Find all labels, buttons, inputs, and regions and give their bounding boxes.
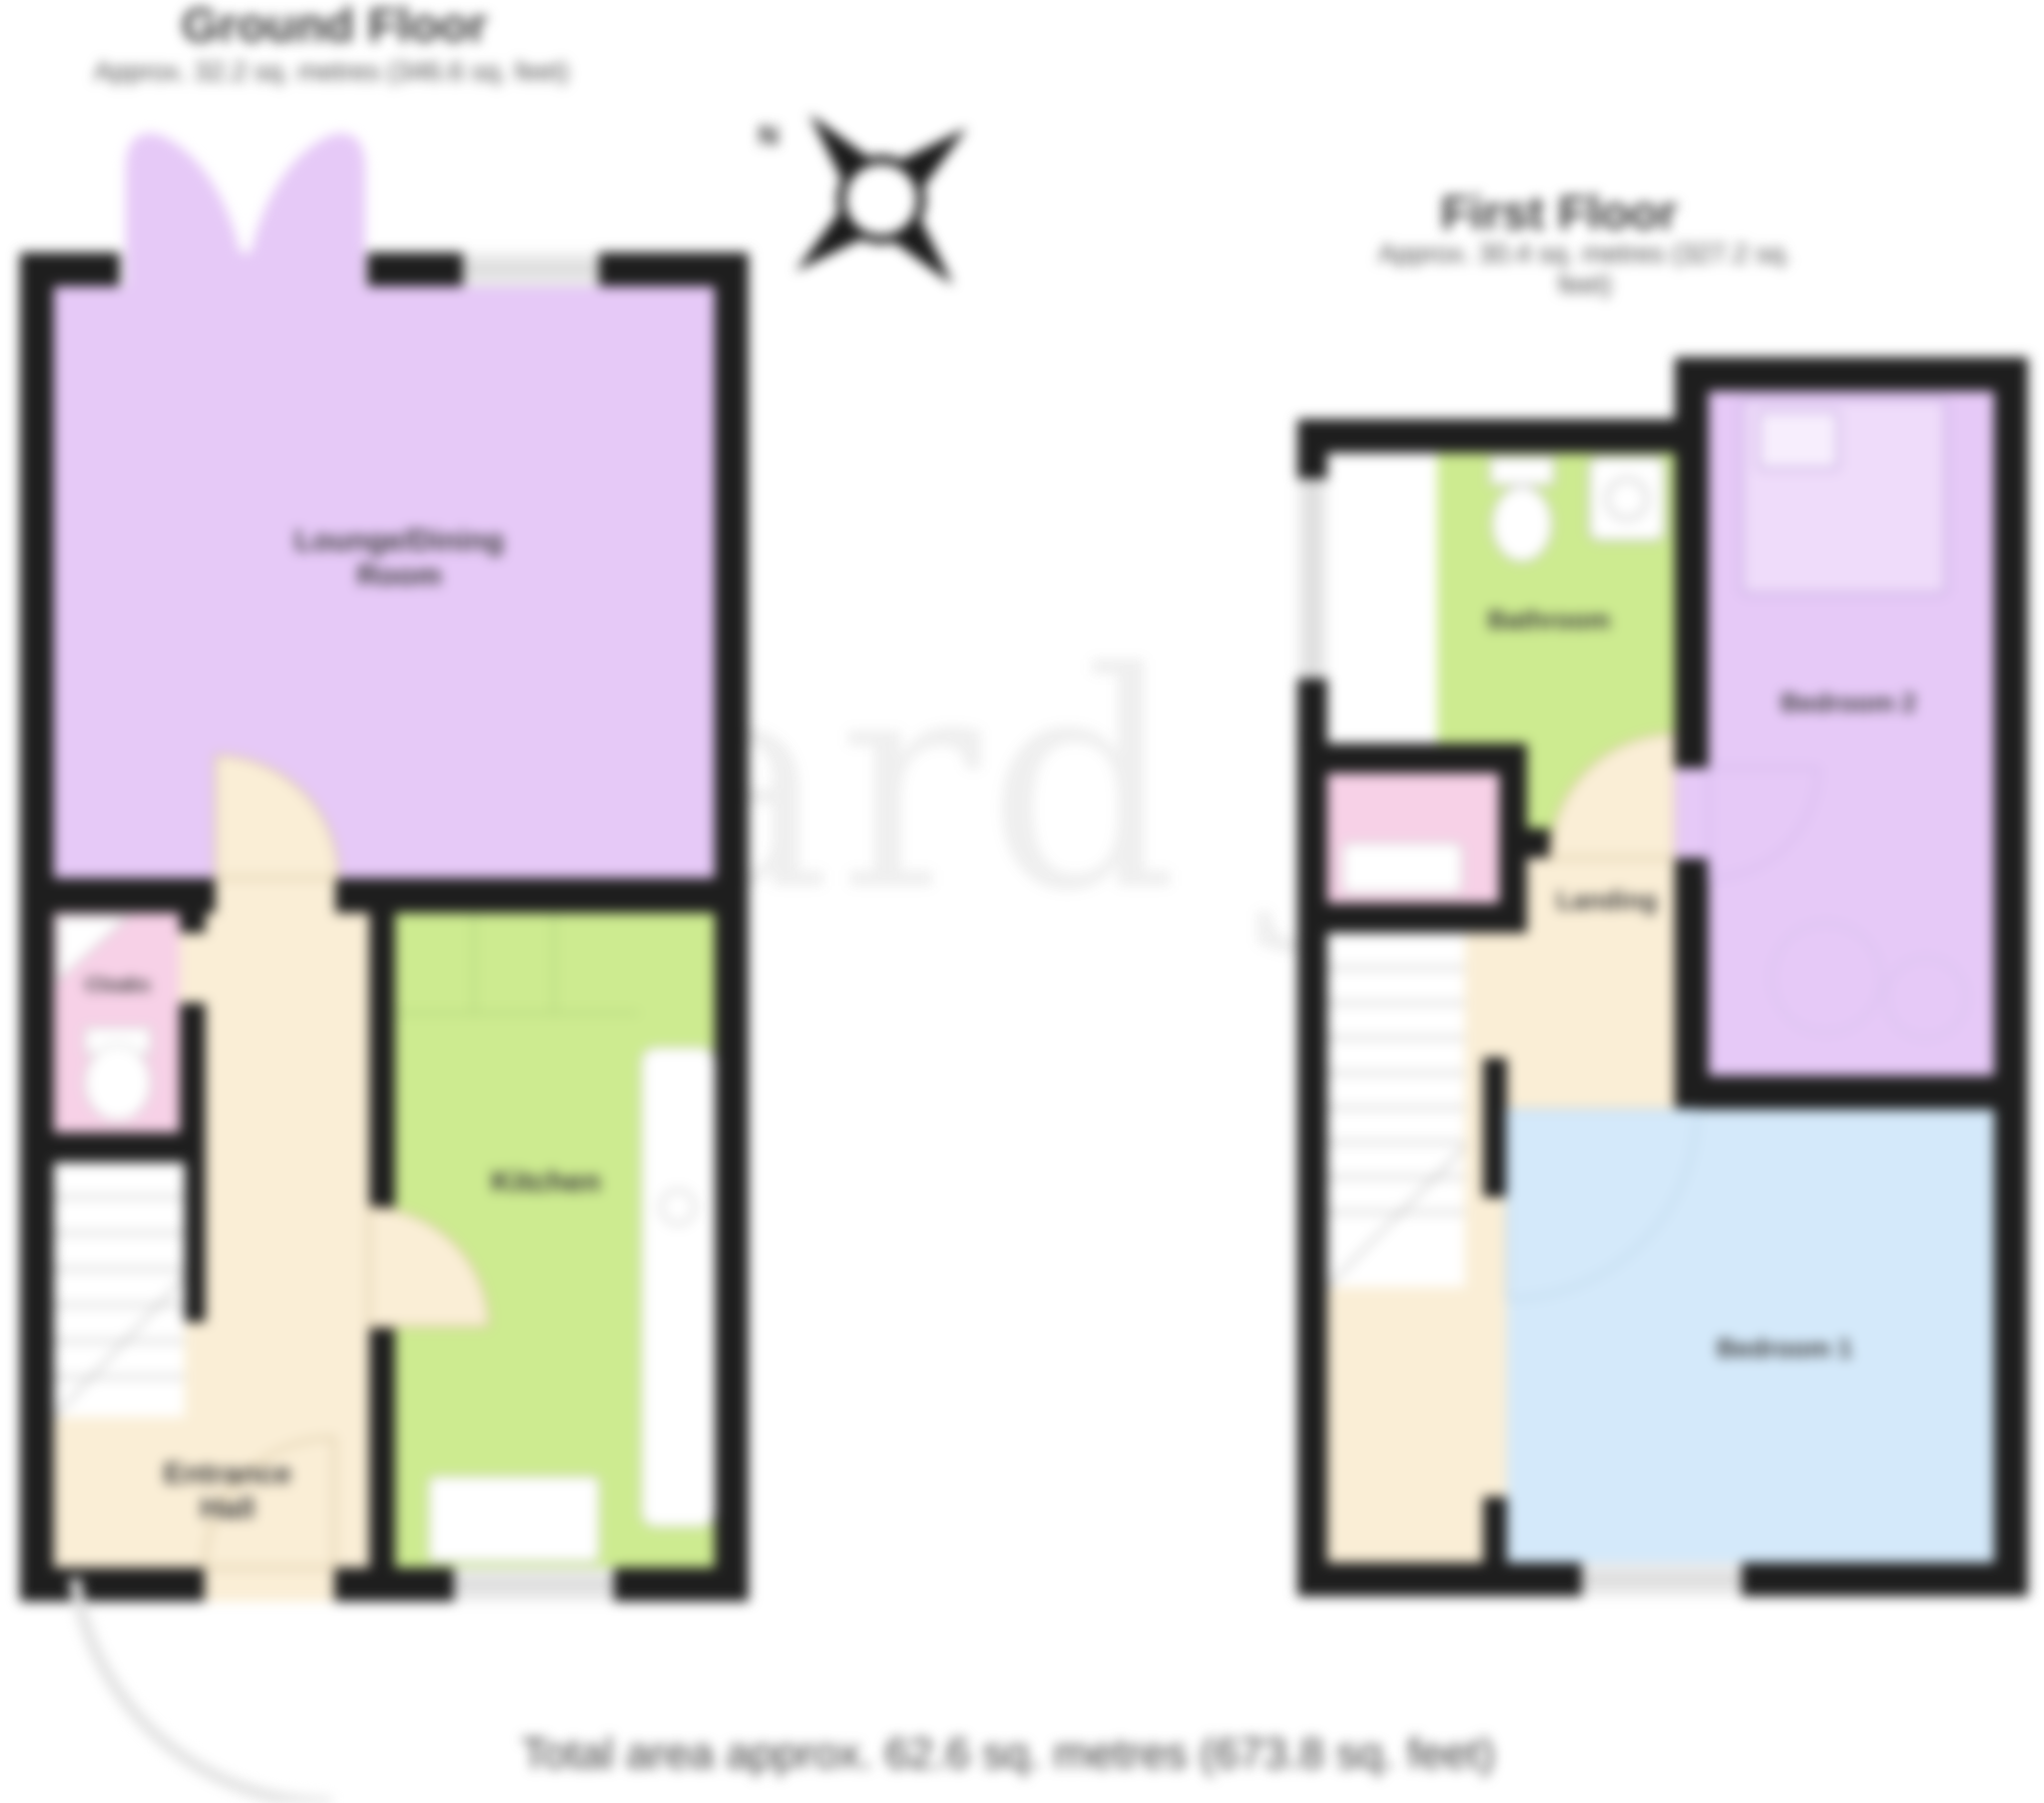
cupboard-tank-icon bbox=[1342, 843, 1462, 893]
toilet-icon bbox=[1492, 486, 1552, 562]
first-floor-subtitle: Approx. 30.4 sq. metres (327.2 sq. feet) bbox=[1355, 238, 1814, 300]
bathroom-label: Bathroom bbox=[1488, 606, 1611, 636]
landing-label: Landing bbox=[1556, 886, 1657, 916]
floorplan-page: richard james bbox=[0, 0, 2044, 1803]
bathroom-shower-area bbox=[1327, 453, 1437, 743]
appliance-icon bbox=[429, 1477, 599, 1562]
sink-icon bbox=[661, 1190, 695, 1224]
door-swing-outside bbox=[75, 1578, 332, 1803]
patio-door-leaf-right bbox=[246, 134, 365, 289]
staircase-ground bbox=[54, 1162, 206, 1417]
compass-north-label: N bbox=[759, 120, 778, 152]
toilet-cistern-icon bbox=[1490, 457, 1554, 485]
first-floor-title: First Floor bbox=[1440, 187, 1677, 241]
ground-floor-title: Ground Floor bbox=[182, 0, 488, 54]
ground-floor-subtitle: Approx. 32.2 sq. metres (346.6 sq. feet) bbox=[94, 57, 569, 88]
toilet-icon bbox=[85, 1045, 151, 1121]
cloaks-label: Cloaks bbox=[85, 975, 151, 998]
bedroom2-label: Bedroom 2 bbox=[1781, 688, 1916, 718]
kitchen-label: Kitchen bbox=[491, 1165, 601, 1200]
staircase-first bbox=[1327, 933, 1465, 1287]
ground-floor-plan bbox=[20, 134, 749, 1803]
bed-icon bbox=[1742, 399, 1946, 594]
total-area-text: Total area approx. 62.6 sq. metres (673.… bbox=[521, 1729, 1495, 1779]
lounge-label: Lounge/Dining Room bbox=[294, 525, 504, 594]
entrance-hall-label: Entrance Hall bbox=[164, 1458, 291, 1527]
patio-door-leaf-left bbox=[126, 134, 246, 289]
kitchen-counter bbox=[642, 1048, 715, 1527]
compass-icon bbox=[724, 42, 1039, 357]
bedroom1-label: Bedroom 1 bbox=[1717, 1334, 1852, 1364]
first-floor-plan bbox=[1297, 357, 2028, 1596]
